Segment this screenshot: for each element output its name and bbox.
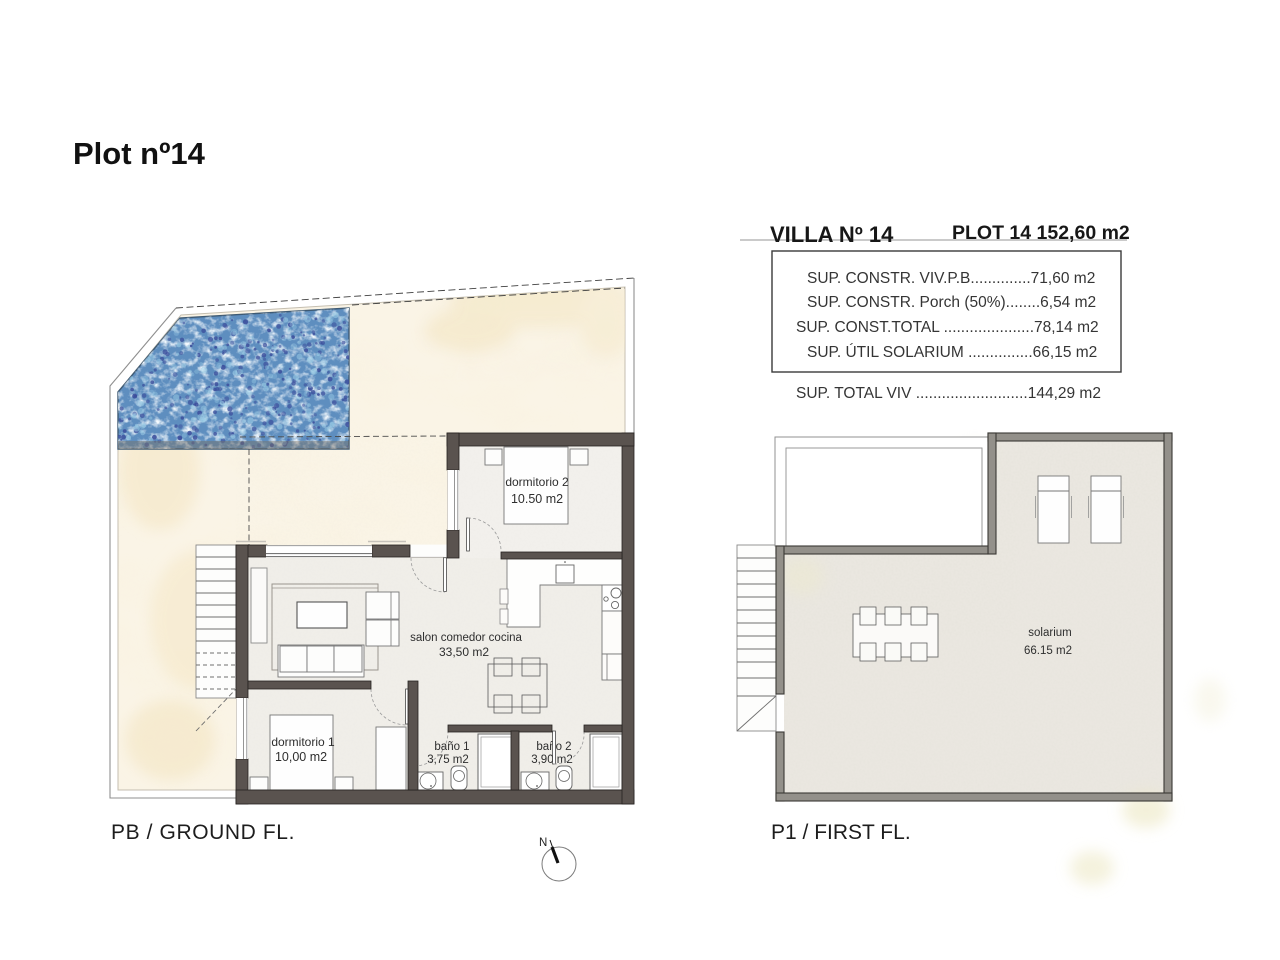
svg-text:baño 1: baño 1	[434, 741, 469, 753]
svg-text:SUP. CONSTR. VIV.P.B..........: SUP. CONSTR. VIV.P.B..............71,60 …	[807, 270, 1095, 287]
svg-text:10,00 m2: 10,00 m2	[275, 750, 327, 764]
svg-text:33,50 m2: 33,50 m2	[439, 645, 489, 659]
svg-text:SUP. ÚTIL SOLARIUM ...........: SUP. ÚTIL SOLARIUM ...............66,15 …	[807, 344, 1097, 361]
svg-text:3,90 m2: 3,90 m2	[531, 754, 573, 766]
svg-text:Plot nº14: Plot nº14	[73, 136, 206, 171]
svg-text:66.15 m2: 66.15 m2	[1024, 645, 1072, 657]
svg-text:SUP. CONSTR. Porch (50%)......: SUP. CONSTR. Porch (50%)........6,54 m2	[807, 294, 1096, 311]
svg-text:PB / GROUND FL.: PB / GROUND FL.	[111, 821, 295, 844]
svg-text:P1 / FIRST FL.: P1 / FIRST FL.	[771, 821, 911, 844]
svg-text:solarium: solarium	[1028, 627, 1071, 639]
svg-text:N: N	[539, 837, 547, 849]
svg-text:dormitorio 2: dormitorio 2	[505, 475, 569, 489]
svg-text:SUP. CONST.TOTAL .............: SUP. CONST.TOTAL .....................78…	[796, 319, 1099, 336]
svg-text:PLOT 14 152,60 m2: PLOT 14 152,60 m2	[952, 222, 1130, 244]
svg-text:dormitorio 1: dormitorio 1	[271, 735, 335, 749]
svg-text:SUP. TOTAL VIV ...............: SUP. TOTAL VIV .........................…	[796, 385, 1101, 402]
svg-text:salon comedor cocina: salon comedor cocina	[410, 632, 522, 644]
svg-text:3,75 m2: 3,75 m2	[427, 754, 469, 766]
svg-text:10.50 m2: 10.50 m2	[511, 492, 563, 506]
svg-text:VILLA Nº 14: VILLA Nº 14	[770, 222, 894, 247]
